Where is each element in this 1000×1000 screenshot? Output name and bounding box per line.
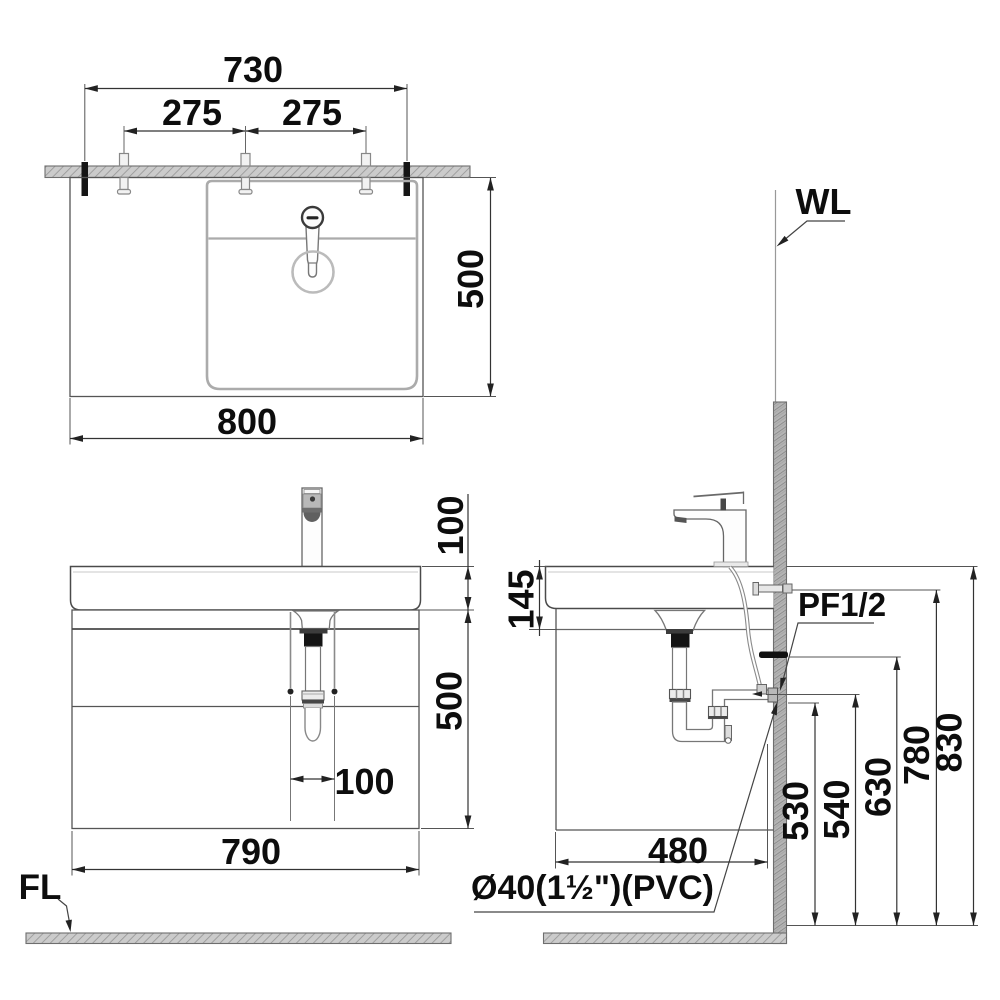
svg-text:540: 540 [816, 779, 857, 839]
svg-text:Ø40(1½")(PVC): Ø40(1½")(PVC) [471, 869, 714, 907]
svg-text:500: 500 [450, 249, 491, 309]
svg-text:800: 800 [217, 401, 277, 442]
svg-text:FL: FL [19, 868, 62, 907]
svg-text:830: 830 [929, 712, 970, 772]
svg-text:275: 275 [162, 92, 222, 133]
svg-text:480: 480 [648, 830, 708, 871]
svg-text:730: 730 [223, 49, 283, 90]
svg-text:500: 500 [429, 671, 470, 731]
svg-text:275: 275 [282, 92, 342, 133]
svg-text:100: 100 [430, 495, 471, 555]
svg-text:100: 100 [334, 761, 394, 802]
svg-text:790: 790 [221, 831, 281, 872]
svg-text:530: 530 [775, 781, 816, 841]
svg-text:630: 630 [858, 757, 899, 817]
svg-text:PF1/2: PF1/2 [798, 586, 886, 623]
svg-text:WL: WL [796, 181, 852, 222]
svg-text:145: 145 [501, 569, 542, 629]
